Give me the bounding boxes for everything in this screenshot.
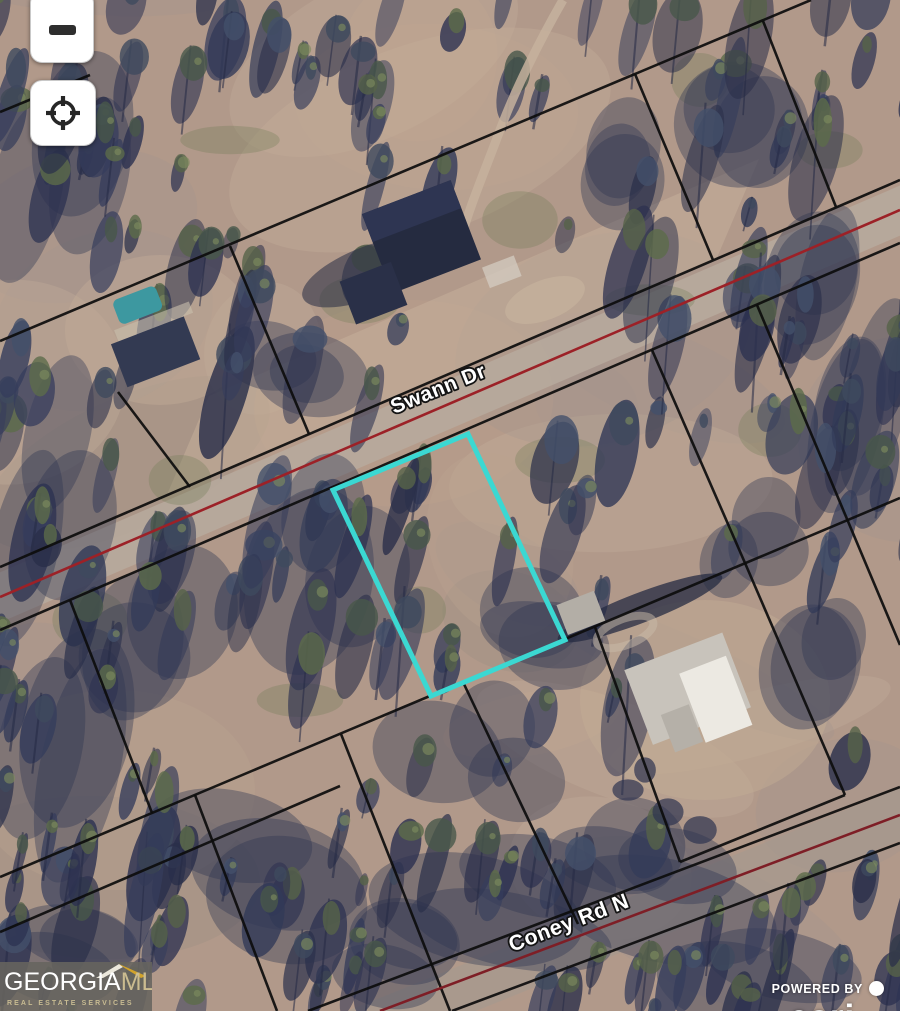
georgia-mls-logo: GEORGIAMLS REAL ESTATE SERVICES [0, 962, 152, 1011]
logo-tagline: REAL ESTATE SERVICES [7, 1000, 134, 1007]
logo-text-georgia: GEORGIA [4, 968, 121, 996]
zoom-out-button[interactable] [30, 0, 94, 63]
map-viewport[interactable]: Swann Dr Coney Rd N GEORGIAMLS REAL ESTA… [0, 0, 900, 1011]
esri-logo-text: esri [789, 998, 855, 1011]
attribution: POWERED BY [772, 981, 884, 996]
esri-globe-icon [869, 981, 884, 996]
crosshair-icon [44, 94, 82, 132]
powered-by-label: POWERED BY [772, 982, 863, 996]
minus-icon [49, 25, 76, 35]
map-canvas[interactable]: Swann Dr Coney Rd N [0, 0, 900, 1011]
logo-text-mls: MLS [121, 968, 152, 996]
locate-button[interactable] [30, 80, 96, 146]
